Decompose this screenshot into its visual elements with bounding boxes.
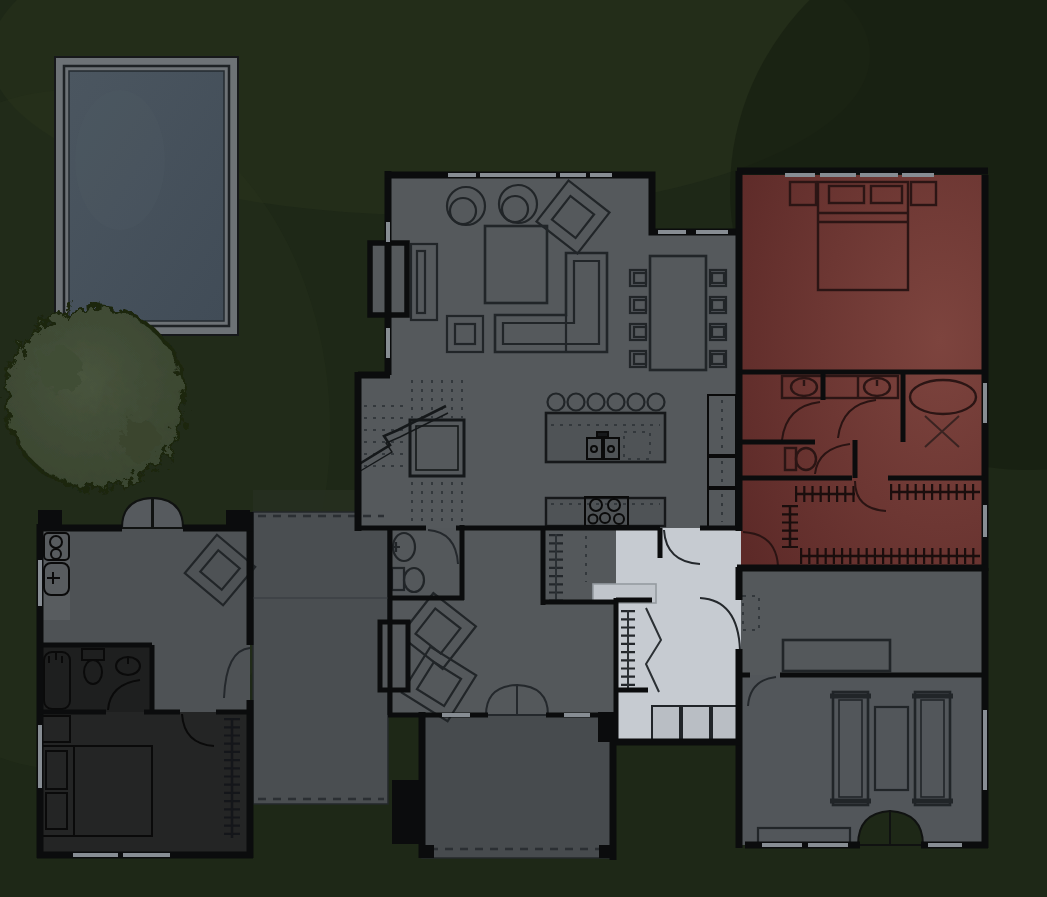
floorplan-stage [0, 0, 1047, 897]
wall-pillar [598, 712, 616, 742]
room-casita-bedroom[interactable] [40, 712, 250, 855]
pool-water-sheen [75, 90, 165, 230]
room-gym[interactable] [741, 675, 985, 845]
porch-post [422, 845, 434, 858]
tree-clump [38, 348, 82, 392]
tree [5, 308, 185, 488]
kitchen [546, 394, 736, 528]
porch-pillar [392, 780, 422, 844]
mudroom-cubbies [652, 706, 738, 742]
den-console [380, 622, 408, 690]
porch-post [599, 845, 613, 858]
room-patio[interactable] [253, 512, 388, 804]
pool [55, 57, 238, 335]
floorplan-svg [0, 0, 1047, 897]
room-office[interactable] [741, 568, 985, 675]
kitchen-back-counter [546, 498, 665, 526]
tree-canopy [5, 308, 185, 488]
room-porch[interactable] [422, 715, 613, 858]
wall-pillar [226, 510, 250, 528]
tree-clump [120, 420, 160, 460]
wall-pillar [38, 510, 62, 528]
